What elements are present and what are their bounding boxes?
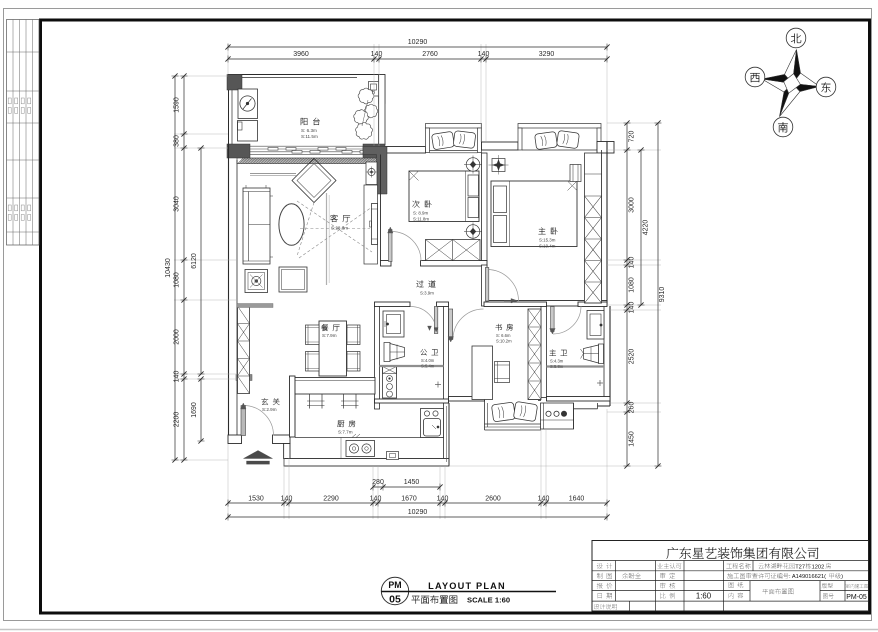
svg-text:): ) (841, 574, 843, 580)
svg-text:380: 380 (174, 135, 181, 147)
svg-text:140: 140 (478, 51, 490, 58)
svg-text:1080: 1080 (174, 272, 181, 288)
svg-text:S:10.2m: S:10.2m (496, 339, 512, 344)
svg-text:1450: 1450 (629, 431, 636, 447)
svg-text:3040: 3040 (174, 196, 181, 212)
svg-text:140: 140 (629, 257, 636, 269)
svg-text:S:7.7m: S:7.7m (338, 430, 353, 435)
svg-text:1690: 1690 (191, 402, 198, 418)
svg-text:1202: 1202 (812, 564, 825, 570)
svg-text:260: 260 (629, 402, 636, 414)
svg-text:SCALE 1:60: SCALE 1:60 (467, 596, 510, 605)
svg-text:S: 6.3m: S: 6.3m (301, 128, 317, 133)
svg-text:2290: 2290 (323, 496, 339, 503)
svg-text:2520: 2520 (629, 349, 636, 365)
svg-text:9310: 9310 (659, 287, 666, 303)
svg-text:S:11.8m: S:11.8m (413, 217, 429, 222)
svg-text:S:5.4m: S:5.4m (421, 364, 435, 369)
svg-text:S:4.3m: S:4.3m (550, 359, 564, 364)
svg-text:140: 140 (281, 496, 293, 503)
svg-text:140: 140 (629, 302, 636, 314)
svg-text:140: 140 (370, 496, 382, 503)
svg-text:S:15.3m: S:15.3m (539, 238, 556, 243)
svg-text:: A149016621(: : A149016621( (789, 574, 826, 580)
svg-text:2200: 2200 (174, 412, 181, 428)
svg-text:S:3.9m: S:3.9m (420, 291, 434, 296)
svg-text:140: 140 (538, 496, 550, 503)
svg-text:280: 280 (372, 479, 384, 486)
svg-text:S:2.9m: S:2.9m (262, 407, 277, 412)
svg-text:4220: 4220 (643, 220, 650, 236)
svg-text:S: 8.9m: S: 8.9m (413, 211, 428, 216)
svg-text:1670: 1670 (401, 496, 417, 503)
svg-text:05: 05 (389, 594, 401, 606)
svg-text:1590: 1590 (174, 97, 181, 113)
svg-text:3290: 3290 (539, 51, 555, 58)
svg-text:10290: 10290 (408, 39, 428, 46)
svg-text:S:4.0m: S:4.0m (421, 358, 435, 363)
svg-text:720: 720 (629, 131, 636, 143)
svg-text:S:5.8m: S:5.8m (550, 364, 564, 369)
svg-text:LAYOUT PLAN: LAYOUT PLAN (428, 581, 506, 591)
svg-text:1640: 1640 (569, 496, 585, 503)
svg-text:1450: 1450 (404, 479, 420, 486)
svg-text:1080: 1080 (629, 277, 636, 293)
svg-text:1:60: 1:60 (696, 592, 712, 601)
svg-text:2760: 2760 (422, 51, 438, 58)
svg-text:6120: 6120 (191, 253, 198, 269)
svg-text:10290: 10290 (408, 509, 428, 516)
svg-text:PM-05: PM-05 (846, 594, 867, 601)
svg-text:140: 140 (437, 496, 449, 503)
svg-text:3000: 3000 (629, 197, 636, 213)
svg-text:S:28.3m: S:28.3m (331, 226, 348, 231)
svg-text:140: 140 (371, 51, 383, 58)
svg-text:2600: 2600 (485, 496, 501, 503)
svg-text:2000: 2000 (174, 329, 181, 345)
svg-text:1530: 1530 (248, 496, 264, 503)
svg-text:S:11.5m: S:11.5m (301, 134, 318, 139)
svg-text:S:19.4m: S:19.4m (539, 244, 556, 249)
svg-text:10430: 10430 (165, 258, 172, 278)
svg-text:T27: T27 (795, 564, 805, 570)
svg-text:S:7.9m: S:7.9m (322, 333, 337, 338)
svg-text:3960: 3960 (293, 51, 309, 58)
svg-text:PM: PM (388, 580, 401, 590)
svg-text:140: 140 (174, 371, 181, 383)
svg-text:S: 6.6m: S: 6.6m (496, 333, 511, 338)
